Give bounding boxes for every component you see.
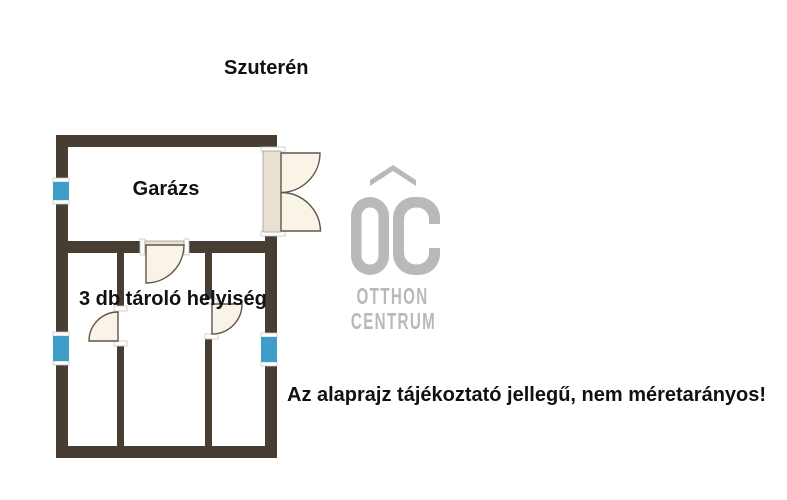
floorplan-drawing <box>0 0 787 500</box>
floorplan-page: Szuterén Garázs 3 db tároló helyiség Az … <box>0 0 787 500</box>
disclaimer-text: Az alaprajz tájékoztató jellegű, nem mér… <box>287 384 766 407</box>
watermark-line1: OTTHON <box>313 283 473 310</box>
watermark-logo <box>351 165 450 275</box>
floor-title: Szuterén <box>224 57 308 80</box>
room-label-garage: Garázs <box>68 178 264 201</box>
room-label-storage: 3 db tároló helyiség <box>79 288 267 311</box>
watermark-line2: CENTRUM <box>313 308 473 335</box>
logo-letter-c-icon <box>393 197 450 275</box>
garage-door-leaves-icon <box>281 153 321 231</box>
door-jamb-icon <box>140 239 145 255</box>
logo-letter-o-icon <box>351 197 389 275</box>
garage-window-icon <box>53 178 69 204</box>
storage-left-door-leaf-icon <box>89 312 118 341</box>
door-jamb-icon <box>184 239 189 255</box>
door-jamb-icon <box>114 341 127 346</box>
storage-left-door <box>89 306 127 346</box>
divider-door-leaf-icon <box>146 245 184 283</box>
outer-wall-bottom <box>56 446 277 458</box>
interior-wall-right-lower <box>205 334 212 446</box>
divider-door <box>140 239 189 283</box>
door-jamb-icon <box>205 334 218 339</box>
interior-wall-left-lower <box>117 341 124 446</box>
garage-door-recess <box>263 151 281 232</box>
garage-double-door <box>261 147 321 236</box>
roof-chevron-icon <box>370 165 416 186</box>
outer-wall-top <box>56 135 277 147</box>
storage-window-right-icon <box>261 333 277 366</box>
storage-window-left-icon <box>53 332 69 365</box>
